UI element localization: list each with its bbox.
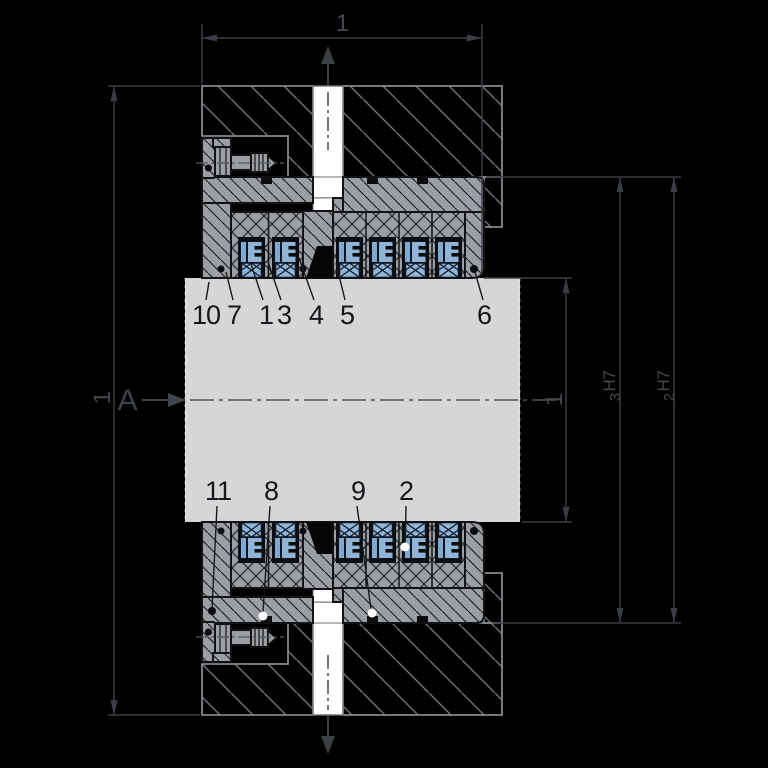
callout-2: 2 [399, 476, 413, 506]
gland-plate-left-top [202, 177, 313, 203]
seal-cartridge-bottom [202, 521, 484, 623]
bolt-hole-bottom [205, 629, 212, 636]
callout-1: 1 [259, 300, 273, 330]
seal-groove [435, 237, 462, 279]
callout-target-11 [208, 607, 216, 615]
seal-groove [272, 521, 299, 563]
seal-groove [238, 521, 265, 563]
seal-groove [336, 237, 363, 279]
drawing-canvas: 1 1 1 3H7 2H7 A [0, 0, 768, 768]
callout-5: 5 [340, 300, 354, 330]
callout-10: 10 [192, 300, 220, 330]
seal-groove [238, 237, 265, 279]
callout-target-9 [368, 609, 377, 618]
seal-cross-section-drawing: 1 1 1 3H7 2H7 A [0, 0, 768, 768]
dim-label-outer-diameter: 1 [89, 391, 116, 404]
gland-plate-left-bottom [202, 597, 313, 623]
gland-plate-right-top [343, 177, 484, 214]
gland-ring-top [202, 203, 231, 278]
bolt-hole-top [205, 165, 212, 172]
flush-port-top [313, 86, 343, 211]
gland-plate-right-bottom [343, 586, 484, 623]
callout-8: 8 [264, 476, 278, 506]
dowel-pin-top [470, 265, 478, 273]
callout-target-8 [259, 612, 268, 621]
gland-ring-bottom [202, 522, 231, 597]
callout-9: 9 [351, 476, 365, 506]
callout-3: 3 [277, 300, 291, 330]
callout-6: 6 [477, 300, 491, 330]
seal-groove [272, 237, 299, 279]
seal-groove [369, 237, 396, 279]
callout-4: 4 [309, 300, 324, 330]
flush-port-bottom [313, 589, 343, 715]
section-label: A [117, 384, 137, 417]
seal-cartridge-top [202, 177, 484, 279]
callout-target-2 [401, 543, 410, 552]
dowel-pin-bottom [470, 527, 478, 535]
callout-7: 7 [227, 300, 241, 330]
seal-groove [402, 237, 429, 279]
seal-groove [435, 521, 462, 563]
dim-label-top-length: 1 [336, 10, 349, 37]
seal-groove [369, 521, 396, 563]
callout-11: 11 [205, 476, 231, 506]
dim-label-shaft-diameter: 1 [541, 393, 568, 406]
seal-groove [336, 521, 363, 563]
